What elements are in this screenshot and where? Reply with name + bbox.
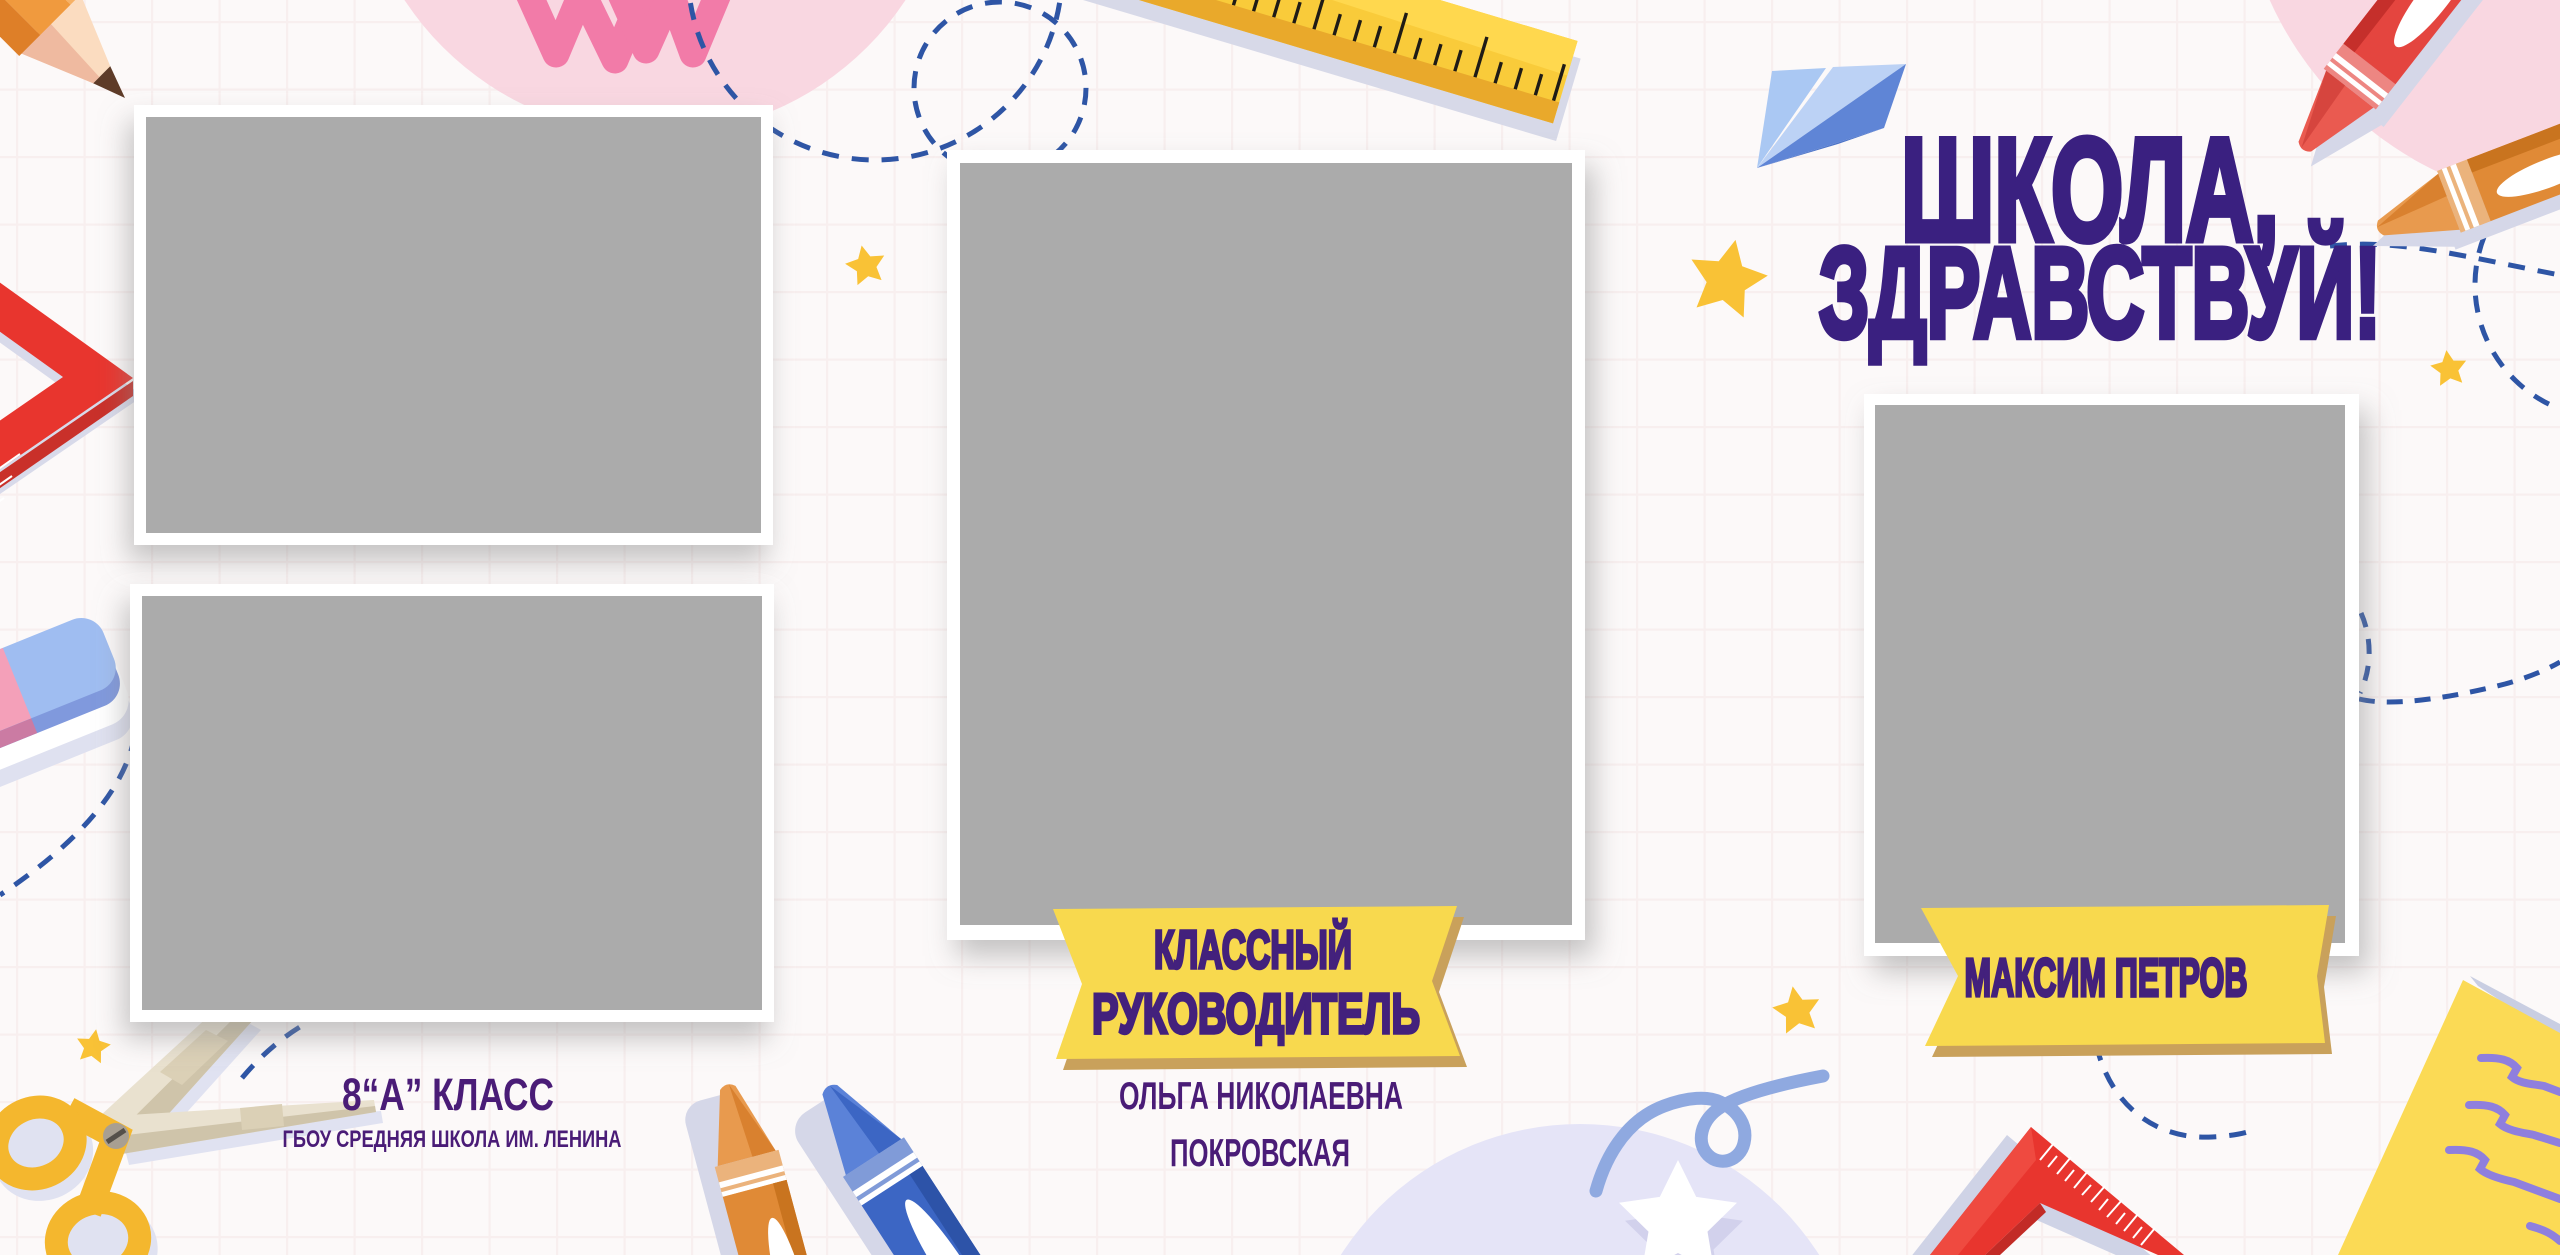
- svg-text:ЗДРАВСТВУЙ!: ЗДРАВСТВУЙ!: [1819, 221, 2381, 365]
- svg-text:ОЛЬГА НИКОЛАЕВНА: ОЛЬГА НИКОЛАЕВНА: [1119, 1075, 1403, 1118]
- svg-text:8“А” КЛАСС: 8“А” КЛАСС: [342, 1069, 554, 1120]
- svg-text:ГБОУ СРЕДНЯЯ ШКОЛА ИМ. ЛЕНИНА: ГБОУ СРЕДНЯЯ ШКОЛА ИМ. ЛЕНИНА: [283, 1126, 622, 1153]
- svg-text:РУКОВОДИТЕЛЬ: РУКОВОДИТЕЛЬ: [1092, 982, 1420, 1046]
- svg-text:КЛАССНЫЙ: КЛАССНЫЙ: [1154, 919, 1352, 980]
- svg-text:МАКСИМ ПЕТРОВ: МАКСИМ ПЕТРОВ: [1965, 948, 2248, 1008]
- svg-text:ПОКРОВСКАЯ: ПОКРОВСКАЯ: [1170, 1132, 1350, 1175]
